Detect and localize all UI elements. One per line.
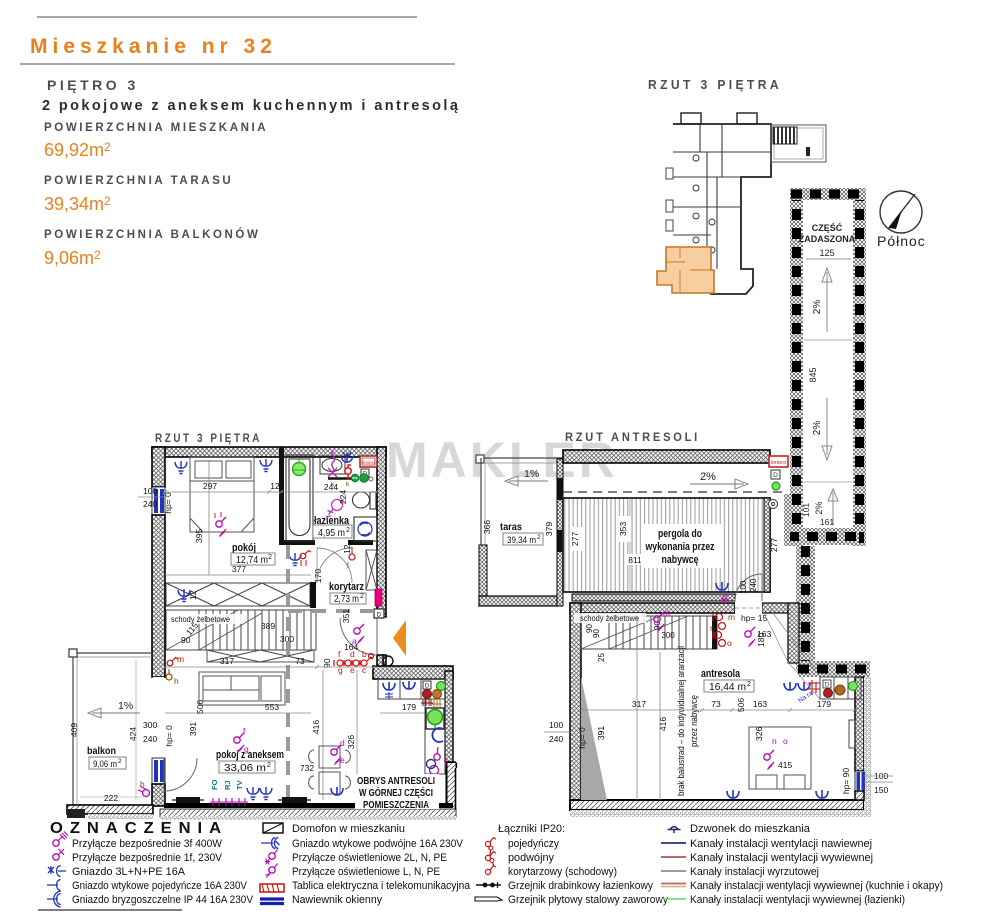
svg-text:2,73 m: 2,73 m <box>334 594 359 605</box>
svg-text:OBRYS ANTRESOLI: OBRYS ANTRESOLI <box>357 776 435 787</box>
svg-text:POWIERZCHNIA MIESZKANIA: POWIERZCHNIA MIESZKANIA <box>44 122 268 134</box>
svg-text:Nawiewnik okienny: Nawiewnik okienny <box>292 894 382 906</box>
svg-text:73: 73 <box>295 656 305 666</box>
svg-text:180: 180 <box>756 633 766 647</box>
svg-text:hp= 0: hp= 0 <box>163 492 173 514</box>
svg-text:D: D <box>773 472 778 479</box>
svg-text:Mieszkanie nr 32: Mieszkanie nr 32 <box>30 35 277 58</box>
svg-text:m: m <box>177 654 184 664</box>
svg-text:Kanały instalacji wentylacji w: Kanały instalacji wentylacji wywiewnej (… <box>690 894 905 906</box>
svg-text:379: 379 <box>544 522 554 536</box>
svg-text:277: 277 <box>769 538 779 552</box>
svg-text:Kanały instalacji wentylacji n: Kanały instalacji wentylacji nawiewnej <box>690 838 872 850</box>
svg-text:Grzejnik płytowy stalowy zawor: Grzejnik płytowy stalowy zaworowy <box>508 894 668 906</box>
svg-text:12: 12 <box>270 481 280 491</box>
svg-text:Gniazdo wtykowe podwójne 16A 2: Gniazdo wtykowe podwójne 16A 230V <box>292 838 464 850</box>
svg-text:222: 222 <box>104 793 118 803</box>
svg-text:balkon: balkon <box>87 745 116 757</box>
svg-text:2%: 2% <box>812 300 823 315</box>
svg-text:D: D <box>377 612 382 619</box>
svg-text:FO: FO <box>210 779 219 790</box>
svg-text:416: 416 <box>658 717 668 731</box>
svg-text:1%: 1% <box>118 700 133 712</box>
svg-text:wykonania przez: wykonania przez <box>645 541 715 553</box>
svg-text:845: 845 <box>808 367 818 382</box>
svg-text:2%: 2% <box>812 421 823 436</box>
svg-text:161: 161 <box>820 517 834 527</box>
svg-text:o: o <box>727 638 732 648</box>
svg-text:Przyłącze oświetleniowe 2L, N,: Przyłącze oświetleniowe 2L, N, PE <box>292 852 447 864</box>
svg-text:317: 317 <box>220 656 234 666</box>
svg-text:Gniazdo wtykowe pojedyńcze 16A: Gniazdo wtykowe pojedyńcze 16A 230V <box>72 880 248 892</box>
svg-text:d: d <box>340 738 345 748</box>
svg-text:ZADASZONA: ZADASZONA <box>799 234 856 244</box>
svg-text:2%: 2% <box>700 471 716 483</box>
svg-text:pokój: pokój <box>232 542 256 554</box>
svg-text:409: 409 <box>69 723 79 737</box>
svg-text:2: 2 <box>346 527 350 534</box>
svg-text:366: 366 <box>482 520 492 534</box>
svg-text:2 pokojowe z aneksem kuchennym: 2 pokojowe z aneksem kuchennym i antreso… <box>42 98 460 114</box>
svg-text:506: 506 <box>736 698 746 712</box>
svg-text:100: 100 <box>549 720 563 730</box>
svg-text:2: 2 <box>747 681 751 688</box>
svg-text:297: 297 <box>203 481 217 491</box>
svg-text:RJ: RJ <box>223 780 232 790</box>
svg-text:16,44 m: 16,44 m <box>709 682 746 693</box>
svg-text:TV: TV <box>235 780 244 790</box>
svg-text:277: 277 <box>570 532 580 546</box>
svg-text:39,34 m: 39,34 m <box>507 535 536 546</box>
svg-text:n: n <box>710 623 715 633</box>
svg-text:korytarz: korytarz <box>329 581 364 593</box>
svg-text:353: 353 <box>618 522 628 536</box>
svg-text:389: 389 <box>261 621 275 631</box>
svg-text:415: 415 <box>778 760 792 770</box>
svg-text:hp= 0: hp= 0 <box>164 725 174 747</box>
svg-text:POMIESZCZENIA: POMIESZCZENIA <box>363 800 429 811</box>
svg-text:125: 125 <box>819 248 834 258</box>
svg-text:Grzejnik drabinkowy łazienkowy: Grzejnik drabinkowy łazienkowy <box>508 880 653 892</box>
svg-text:244: 244 <box>324 482 338 492</box>
svg-text:CZĘŚĆ: CZĘŚĆ <box>812 222 843 233</box>
svg-text:śmieci: śmieci <box>362 460 375 465</box>
svg-text:hp= 90: hp= 90 <box>841 768 851 795</box>
svg-text:2: 2 <box>360 593 364 600</box>
svg-text:POWIERZCHNIA BALKONÓW: POWIERZCHNIA BALKONÓW <box>44 228 260 241</box>
svg-text:90: 90 <box>592 629 601 638</box>
svg-text:Przyłącze bezpośrednie 1f, 230: Przyłącze bezpośrednie 1f, 230V <box>72 852 223 864</box>
svg-text:73: 73 <box>711 699 721 709</box>
svg-text:przez nabywcę: przez nabywcę <box>689 695 700 747</box>
svg-text:RZUT ANTRESOLI: RZUT ANTRESOLI <box>565 430 700 444</box>
svg-text:Kanały instalacji wyrzutowej: Kanały instalacji wyrzutowej <box>690 866 819 878</box>
svg-text:395: 395 <box>194 529 204 543</box>
svg-text:101: 101 <box>801 503 811 517</box>
svg-text:300: 300 <box>143 720 157 730</box>
svg-text:schody żelbetowe: schody żelbetowe <box>580 613 639 623</box>
svg-text:300: 300 <box>661 631 675 640</box>
svg-text:Gniazdo 3L+N+PE 16A: Gniazdo 3L+N+PE 16A <box>72 866 186 878</box>
svg-text:nabywcę: nabywcę <box>662 554 699 566</box>
svg-text:Przyłącze bezpośrednie 3f 400W: Przyłącze bezpośrednie 3f 400W <box>72 838 223 850</box>
svg-text:b: b <box>362 649 367 659</box>
svg-text:taras: taras <box>500 521 522 533</box>
svg-text:1%: 1% <box>524 468 539 480</box>
svg-text:RZUT 3 PIĘTRA: RZUT 3 PIĘTRA <box>648 78 782 92</box>
svg-text:hp= 15: hp= 15 <box>741 613 768 623</box>
svg-text:Dzwonek do mieszkania: Dzwonek do mieszkania <box>690 823 811 835</box>
svg-text:2: 2 <box>267 762 271 769</box>
svg-text:podwójny: podwójny <box>508 852 554 864</box>
svg-text:Kanały instalacji wentylacji w: Kanały instalacji wentylacji wywiewnej (… <box>690 880 943 892</box>
svg-text:150: 150 <box>874 785 888 795</box>
svg-text:33,06 m: 33,06 m <box>224 763 266 774</box>
svg-text:pokoj z aneksem: pokoj z aneksem <box>216 749 284 761</box>
svg-text:Tablica elektryczna i telekomu: Tablica elektryczna i telekomunikacyjna <box>292 880 471 892</box>
svg-text:100: 100 <box>739 580 748 594</box>
svg-text:317: 317 <box>632 699 646 709</box>
svg-text:e: e <box>350 665 355 675</box>
svg-text:o: o <box>783 736 788 746</box>
svg-text:732: 732 <box>300 763 314 773</box>
svg-text:Kanały instalacji wentylacji w: Kanały instalacji wentylacji wywiewnej <box>690 852 873 864</box>
svg-text:811: 811 <box>628 555 642 565</box>
svg-text:h: h <box>174 676 179 686</box>
svg-text:Północ: Północ <box>877 233 926 249</box>
svg-text:25: 25 <box>597 653 606 662</box>
svg-text:2: 2 <box>118 758 122 765</box>
svg-text:h: h <box>140 779 145 789</box>
svg-text:391: 391 <box>596 726 606 740</box>
svg-text:POWIERZCHNIA TARASU: POWIERZCHNIA TARASU <box>44 175 233 187</box>
svg-text:179: 179 <box>402 702 416 712</box>
svg-text:l: l <box>347 561 349 570</box>
svg-text:Przyłącze oświetleniowe L, N,: Przyłącze oświetleniowe L, N, PE <box>292 866 440 878</box>
svg-text:hp= 0: hp= 0 <box>577 727 587 749</box>
svg-text:m: m <box>663 608 670 618</box>
svg-text:PIĘTRO 3: PIĘTRO 3 <box>47 77 139 93</box>
svg-text:g: g <box>244 744 249 754</box>
svg-text:424: 424 <box>128 727 138 741</box>
svg-text:e: e <box>340 755 345 765</box>
svg-text:240: 240 <box>143 734 157 744</box>
svg-text:śmieci: śmieci <box>771 460 787 466</box>
svg-text:pojedyńczy: pojedyńczy <box>508 838 559 850</box>
svg-text:pergola do: pergola do <box>658 528 702 540</box>
svg-text:W GÓRNEJ CZĘŚCI: W GÓRNEJ CZĘŚCI <box>359 786 433 799</box>
svg-text:100: 100 <box>143 486 157 496</box>
svg-text:Domofon w mieszkaniu: Domofon w mieszkaniu <box>292 823 405 835</box>
svg-text:326: 326 <box>346 735 356 749</box>
svg-text:69,92m2: 69,92m2 <box>44 140 111 160</box>
svg-text:391: 391 <box>188 722 198 736</box>
svg-text:12: 12 <box>188 590 198 600</box>
svg-text:377: 377 <box>232 564 246 574</box>
svg-text:2: 2 <box>268 554 272 561</box>
svg-text:240: 240 <box>749 578 758 592</box>
svg-text:163: 163 <box>753 699 767 709</box>
svg-text:506: 506 <box>195 700 205 714</box>
svg-text:brak balustrad – do indywidual: brak balustrad – do indywidualnej aranża… <box>676 646 687 796</box>
svg-text:12: 12 <box>342 544 352 554</box>
svg-text:2: 2 <box>537 534 541 541</box>
svg-text:a: a <box>352 636 357 646</box>
svg-text:9,06m2: 9,06m2 <box>44 248 101 268</box>
svg-text:240: 240 <box>549 734 563 744</box>
svg-text:553: 553 <box>265 702 279 712</box>
svg-text:Gniazdo bryzgoszczelne IP 44 1: Gniazdo bryzgoszczelne IP 44 16A 230V <box>72 894 254 906</box>
svg-text:2%: 2% <box>814 501 824 514</box>
svg-text:D: D <box>425 684 430 690</box>
svg-text:179: 179 <box>817 699 831 709</box>
svg-text:OZNACZENIA: OZNACZENIA <box>50 820 228 837</box>
svg-text:antresola: antresola <box>701 668 741 680</box>
svg-text:9,06 m: 9,06 m <box>93 759 117 770</box>
svg-text:4,95 m: 4,95 m <box>318 527 345 539</box>
svg-text:39,34m2: 39,34m2 <box>44 194 111 214</box>
svg-text:RZUT 3 PIĘTRA: RZUT 3 PIĘTRA <box>155 433 262 445</box>
svg-text:n: n <box>772 736 777 746</box>
svg-text:schody żelbetowe: schody żelbetowe <box>171 614 230 624</box>
svg-text:240: 240 <box>143 499 157 509</box>
svg-text:416: 416 <box>311 720 321 734</box>
svg-text:Łączniki IP20:: Łączniki IP20: <box>498 823 565 835</box>
svg-text:m: m <box>728 612 735 622</box>
svg-text:224: 224 <box>338 490 348 504</box>
svg-text:326: 326 <box>754 727 764 741</box>
svg-text:90: 90 <box>322 658 332 668</box>
svg-text:D: D <box>825 683 830 689</box>
svg-text:korytarzowy (schodowy): korytarzowy (schodowy) <box>508 866 617 878</box>
svg-text:351: 351 <box>341 609 351 623</box>
